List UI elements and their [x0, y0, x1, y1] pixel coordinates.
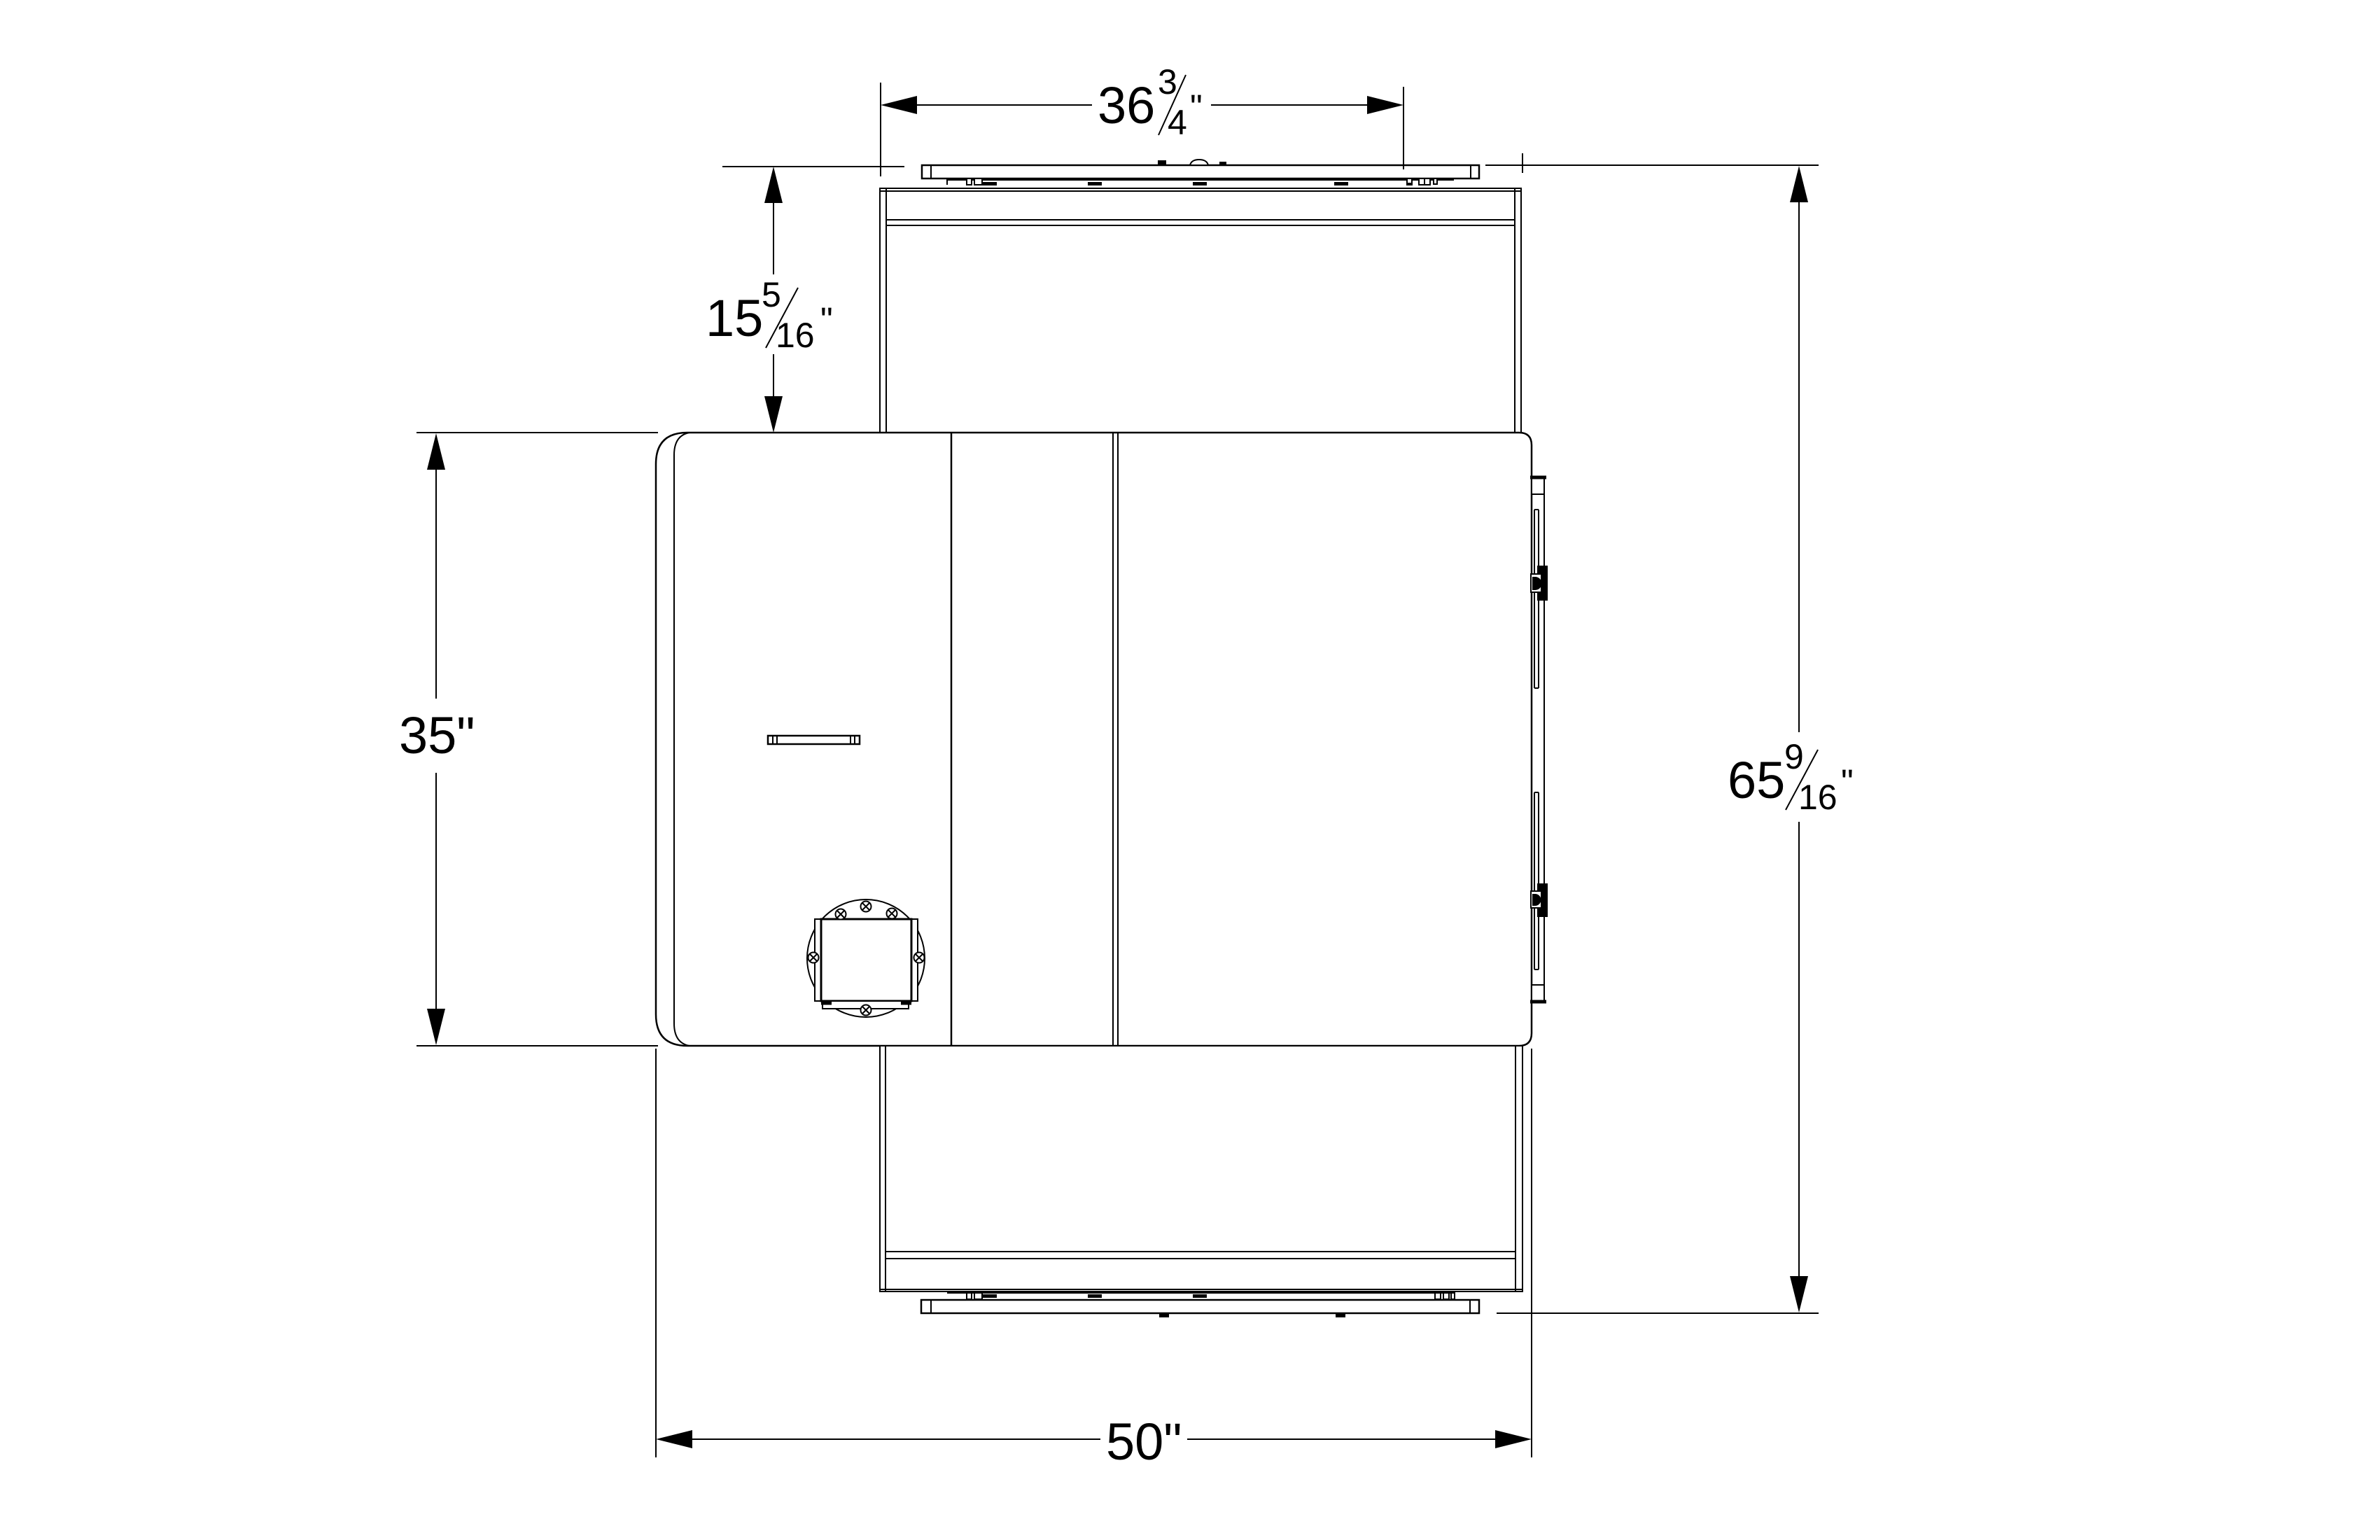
drawing-page: 36 3 4 " 15 5 16 " 35"	[0, 0, 2380, 1540]
bottom-plate-tab	[1435, 1293, 1441, 1299]
bottom-mounting-plate	[921, 1293, 1479, 1317]
top-plate-stud	[1158, 160, 1166, 164]
flange-screw	[808, 953, 819, 963]
top-plate-foot	[983, 182, 997, 185]
arrowhead-left	[656, 1430, 692, 1448]
top-plate-tab	[1424, 178, 1430, 185]
technical-drawing: 36 3 4 " 15 5 16 " 35"	[0, 0, 2380, 1540]
flange-screw	[887, 909, 897, 919]
top-plate-foot	[1407, 183, 1412, 185]
arrowhead-down	[764, 396, 783, 433]
bottom-hood-outline	[880, 1046, 1522, 1291]
dim-unit: "	[820, 300, 833, 339]
dim-body-depth: 35"	[399, 433, 658, 1046]
bottom-plate-tab	[967, 1293, 972, 1299]
dim-denominator: 16	[1798, 778, 1837, 817]
vent-slot	[768, 736, 860, 744]
top-plate-dome-bump	[1190, 160, 1208, 165]
top-plate-tab	[967, 178, 972, 185]
flange-port	[807, 899, 925, 1017]
bottom-plate-foot	[1193, 1294, 1207, 1298]
dim-whole: 65	[1728, 751, 1785, 809]
bottom-plate-outline	[921, 1300, 1479, 1313]
dim-label-body-width: 50"	[1106, 1413, 1182, 1471]
latch-clamp-upper	[1531, 566, 1548, 601]
top-plate-outline	[922, 165, 1479, 178]
dim-label-overall-length: 65 9 16 "	[1728, 737, 1854, 817]
flange-screw	[836, 909, 846, 920]
arrowhead-up	[1790, 166, 1808, 202]
dim-overall-length: 65 9 16 "	[1485, 165, 1854, 1313]
bottom-plate-tab	[1443, 1293, 1449, 1299]
top-plate-tab	[1434, 178, 1437, 184]
bottom-plate-foot	[983, 1294, 997, 1298]
top-plate-tab	[1419, 178, 1424, 185]
dim-label-top-width: 36 3 4 "	[1098, 62, 1203, 142]
bottom-plate-stud	[1336, 1314, 1345, 1317]
dim-label-upper-depth: 15 5 16 "	[706, 275, 833, 355]
vent-slot-outline	[768, 736, 860, 744]
flange-screw	[861, 1005, 871, 1016]
dim-numerator: 5	[762, 275, 781, 314]
flange-square-plate	[821, 919, 911, 1001]
dim-whole: 36	[1098, 76, 1155, 134]
bottom-plate-tab	[974, 1293, 982, 1299]
flange-screw	[914, 953, 925, 963]
flange-screw	[861, 902, 871, 912]
arrowhead-up	[764, 167, 783, 203]
latch-rail-lower	[1534, 792, 1539, 969]
top-hood-section	[880, 153, 1522, 433]
arrowhead-down	[427, 1009, 445, 1045]
dim-whole: 15	[706, 289, 763, 347]
dim-label-body-depth: 35"	[399, 706, 475, 764]
arrowhead-right	[1495, 1430, 1532, 1448]
bottom-plate-tab	[1451, 1293, 1455, 1299]
bottom-hood-section	[880, 1046, 1522, 1291]
latch-clamp-lower	[1531, 883, 1548, 917]
arrowhead-right	[1367, 96, 1403, 114]
bottom-plate-foot	[1088, 1294, 1102, 1298]
top-plate-foot	[1334, 182, 1348, 185]
dim-numerator: 9	[1784, 737, 1804, 776]
bottom-plate-stud	[1159, 1314, 1169, 1317]
dim-upper-depth: 15 5 16 "	[706, 167, 904, 433]
latch-bottom-tab	[1532, 985, 1544, 1002]
dim-denominator: 16	[776, 316, 815, 355]
dim-unit: "	[1841, 762, 1854, 801]
arrowhead-down	[1790, 1276, 1808, 1312]
dim-denominator: 4	[1168, 103, 1187, 142]
right-latch-rail	[1530, 477, 1548, 1003]
top-plate-foot	[1088, 182, 1102, 185]
top-plate-foot	[1193, 182, 1207, 185]
arrowhead-left	[881, 96, 917, 114]
dim-top-width: 36 3 4 "	[881, 62, 1403, 176]
latch-top-tab	[1532, 477, 1544, 494]
dim-numerator: 3	[1158, 62, 1177, 101]
top-plate-stud	[1219, 162, 1226, 165]
arrowhead-up	[427, 433, 445, 470]
dim-unit: "	[1190, 87, 1203, 127]
top-mounting-plate	[922, 160, 1479, 185]
main-body-left-inner-edge	[674, 433, 689, 1046]
top-plate-tab	[974, 178, 982, 185]
